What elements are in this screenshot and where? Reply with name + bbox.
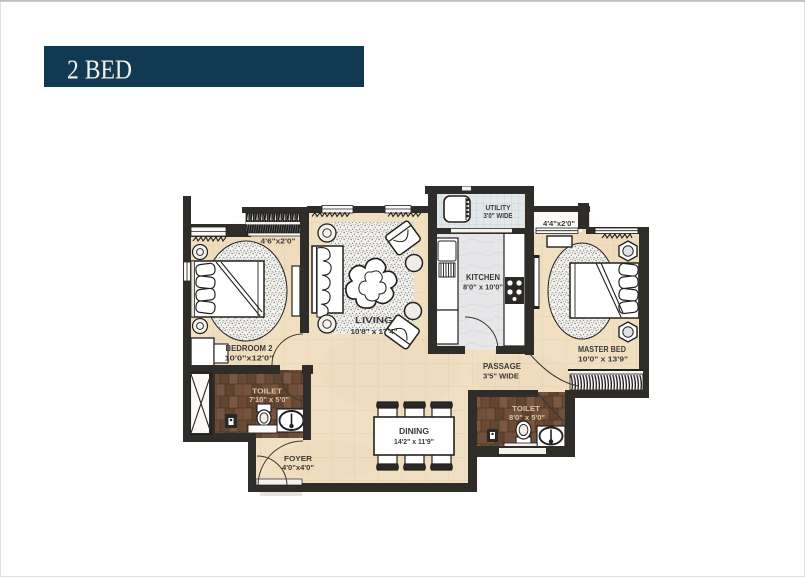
svg-text:TOILET: TOILET [512,404,541,413]
svg-text:10'0" x 13'9": 10'0" x 13'9" [578,355,628,364]
svg-text:FOYER: FOYER [284,454,313,463]
svg-text:BEDROOM 2: BEDROOM 2 [226,343,273,353]
svg-text:7'10" x 5'0": 7'10" x 5'0" [249,395,289,404]
svg-text:2 BED: 2 BED [67,55,132,85]
svg-text:LIVING: LIVING [355,315,393,325]
svg-text:8'0" x 5'0": 8'0" x 5'0" [509,413,545,422]
svg-text:MASTER BED: MASTER BED [578,344,626,354]
svg-text:PASSAGE: PASSAGE [483,361,521,371]
svg-text:3'0" WIDE: 3'0" WIDE [484,211,513,220]
svg-text:8'0" x 10'0": 8'0" x 10'0" [463,283,503,292]
svg-text:4'6"x2'0": 4'6"x2'0" [261,237,296,246]
svg-text:4'0"x4'0": 4'0"x4'0" [282,463,314,472]
svg-text:14'2" x 11'9": 14'2" x 11'9" [394,437,434,446]
svg-text:DINING: DINING [399,426,429,436]
svg-text:10'8" x 17'4": 10'8" x 17'4" [351,327,398,336]
svg-text:KITCHEN: KITCHEN [466,272,500,282]
svg-text:3'5" WIDE: 3'5" WIDE [483,372,519,381]
svg-text:4'4"x2'0": 4'4"x2'0" [543,219,575,228]
svg-text:10'0"x12'0": 10'0"x12'0" [225,354,274,363]
